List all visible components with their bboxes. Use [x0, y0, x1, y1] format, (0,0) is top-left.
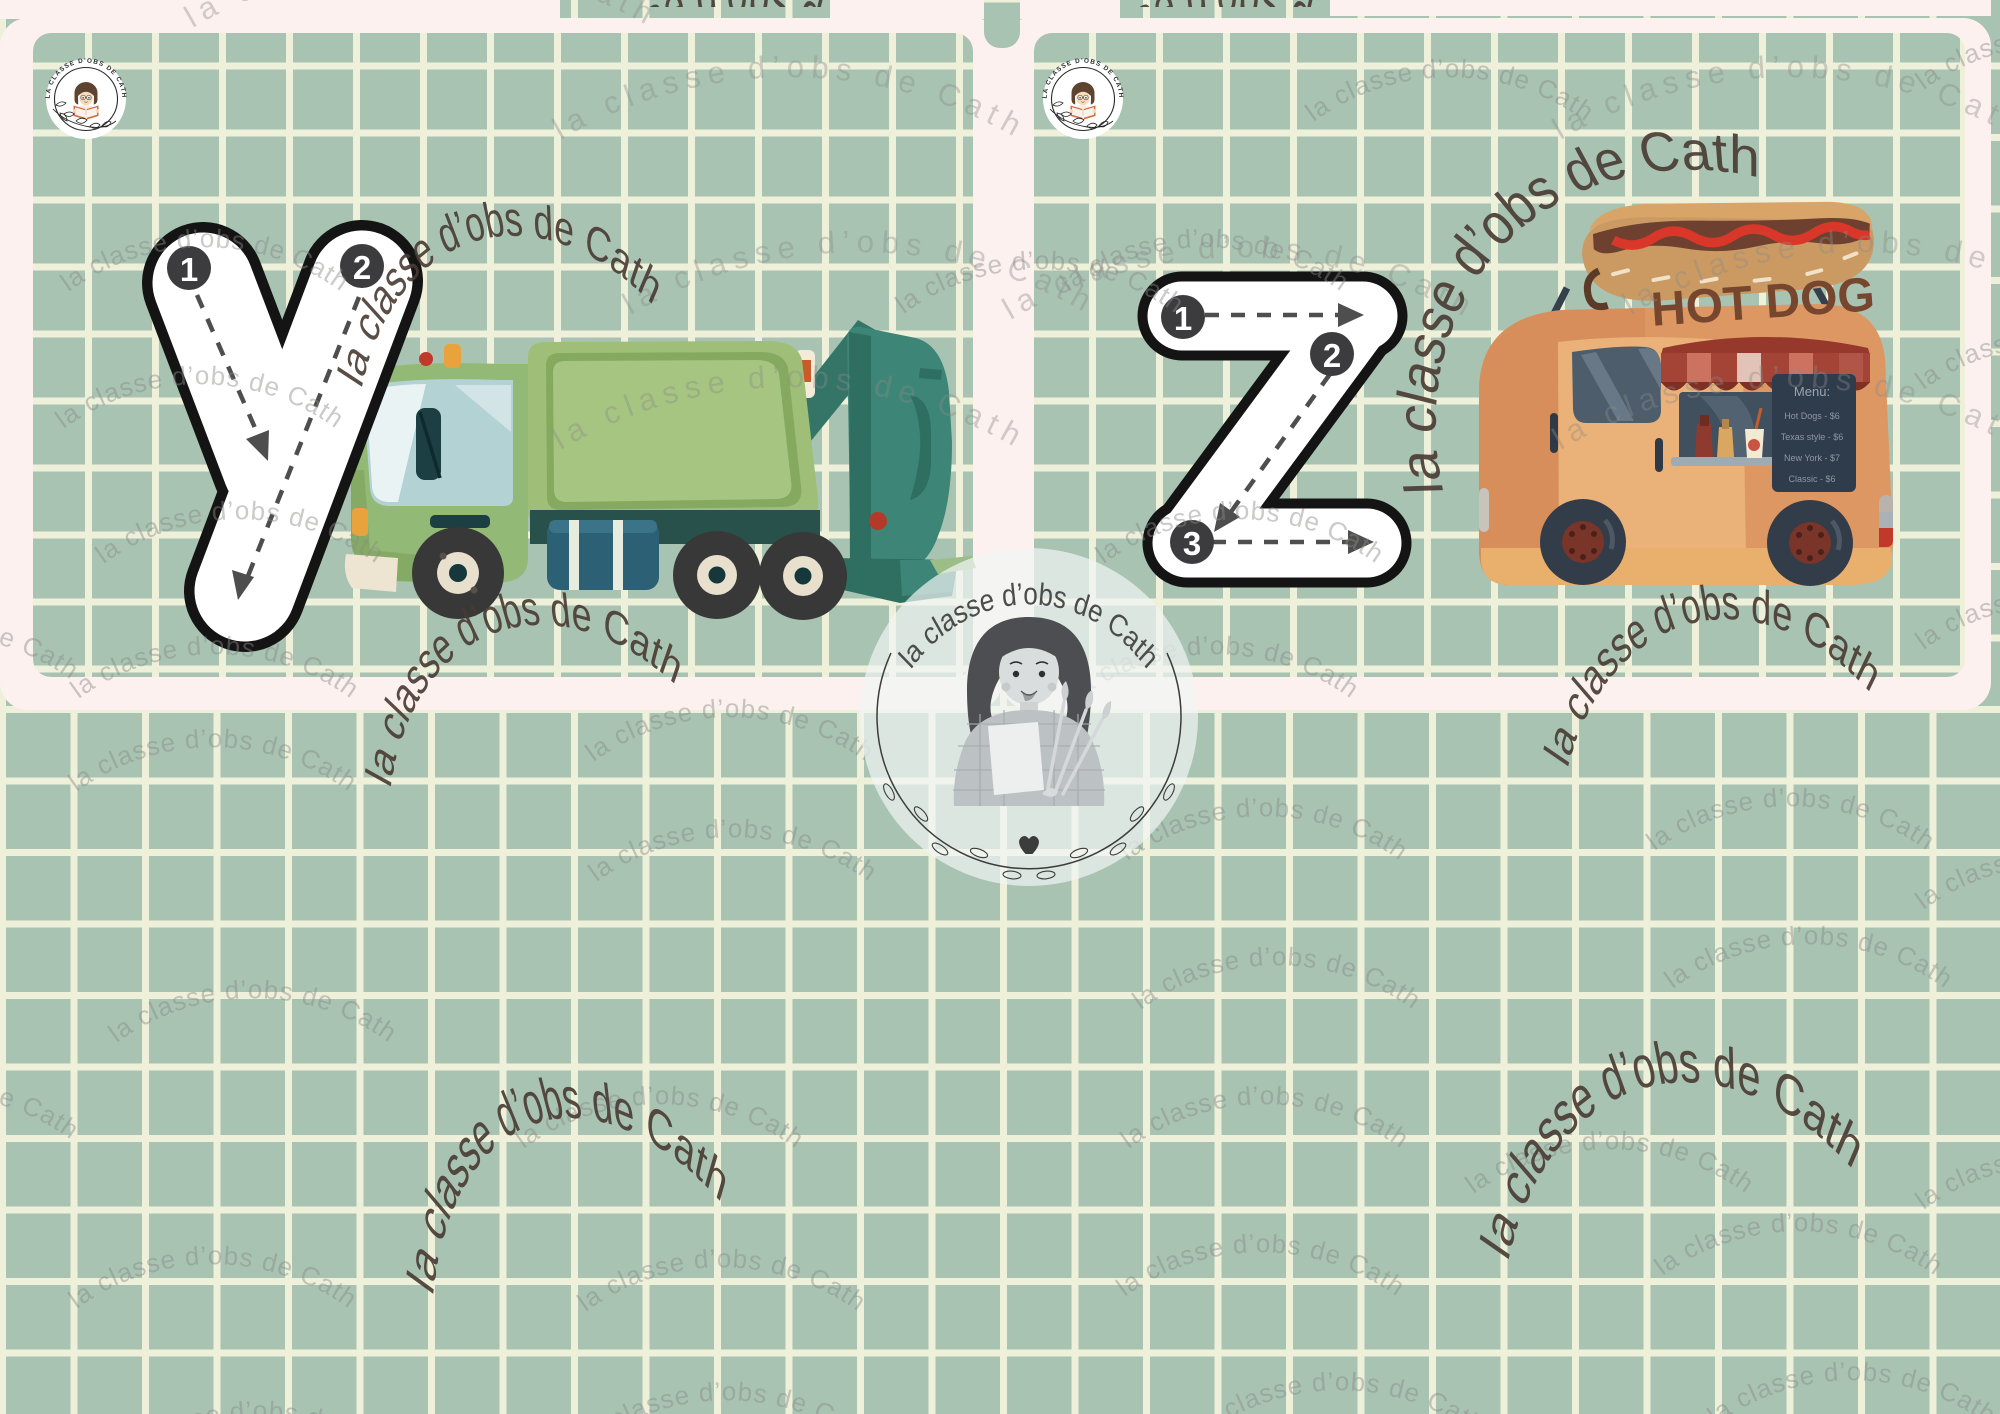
svg-text:la classe d’obs de Cath: la classe d’obs de Cath: [1115, 1080, 1416, 1154]
svg-text:la classe d’obs de Cath: la classe d’obs de Cath: [1910, 1141, 2000, 1215]
svg-text:la classe d’obs de Cath: la classe d’obs de Cath: [65, 630, 366, 704]
svg-text:Hot Dogs - $6: Hot Dogs - $6: [1784, 411, 1840, 421]
svg-text:la classe d’obs de Cath: la classe d’obs de Cath: [0, 1071, 85, 1145]
svg-text:la classe d’obs de Cath: la classe d’obs de Cath: [63, 723, 364, 797]
svg-text:la classe d’obs de Cath: la classe d’obs de Cath: [1190, 1366, 1491, 1414]
svg-text:la classe d’obs de Cath: la classe d’obs de Cath: [1910, 321, 2000, 395]
svg-text:Texas style - $6: Texas style - $6: [1781, 432, 1844, 442]
svg-text:la classe d’obs de Cath: la classe d’obs de Cath: [1649, 1207, 1950, 1281]
svg-text:1: 1: [180, 251, 198, 288]
svg-text:la classe d’obs de Cath: la classe d’obs de Cath: [580, 693, 881, 767]
svg-text:la classe d’obs de Cath: la classe d’obs de Cath: [108, 1395, 409, 1414]
svg-text:la classe d’obs de Cath: la classe d’obs de Cath: [63, 1240, 364, 1314]
svg-text:la classe d’obs de Cath: la classe d’obs de Cath: [583, 813, 884, 887]
svg-text:New York - $7: New York - $7: [1784, 453, 1840, 463]
svg-text:la classe d’obs de Cath: la classe d’obs de Cath: [1127, 941, 1428, 1015]
svg-text:la classe d’obs de Cath: la classe d’obs de Cath: [547, 49, 1034, 146]
svg-text:la classe d’obs de Cath: la classe d’obs de Cath: [1641, 782, 1942, 856]
svg-text:la classe d’obs de Cath: la classe d’obs de Cath: [1111, 1228, 1412, 1302]
svg-text:2: 2: [1323, 337, 1341, 374]
svg-text:la classe d’obs de Cath: la classe d’obs de Cath: [1910, 581, 2000, 655]
svg-text:la classe d’obs de Cath: la classe d’obs de Cath: [0, 611, 85, 685]
svg-text:la classe d’obs de Cath: la classe d’obs de Cath: [1702, 1356, 2000, 1414]
svg-text:la classe d’obs de Cath: la classe d’obs de Cath: [577, 1376, 878, 1414]
svg-text:la classe d’obs de Cath: la classe d’obs de Cath: [103, 974, 404, 1048]
svg-text:la classe d’obs de Cath: la classe d’obs de Cath: [1659, 920, 1960, 994]
svg-text:la classe d’obs de Cath: la classe d’obs de Cath: [572, 1243, 873, 1317]
svg-text:la classe d’obs de Cath: la classe d’obs de Cath: [179, 0, 666, 34]
svg-text:Classic - $6: Classic - $6: [1788, 474, 1835, 484]
